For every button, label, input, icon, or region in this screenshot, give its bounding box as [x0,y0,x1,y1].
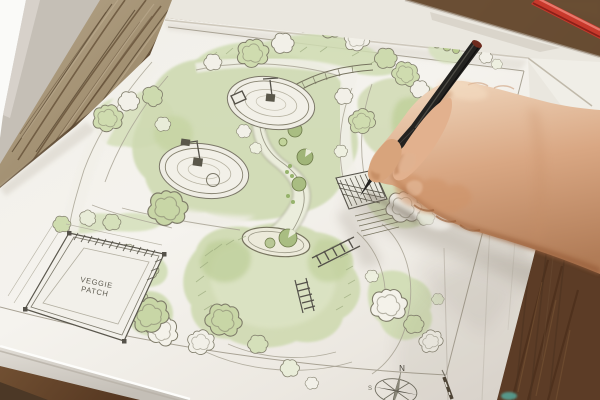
svg-text:S: S [368,386,372,392]
